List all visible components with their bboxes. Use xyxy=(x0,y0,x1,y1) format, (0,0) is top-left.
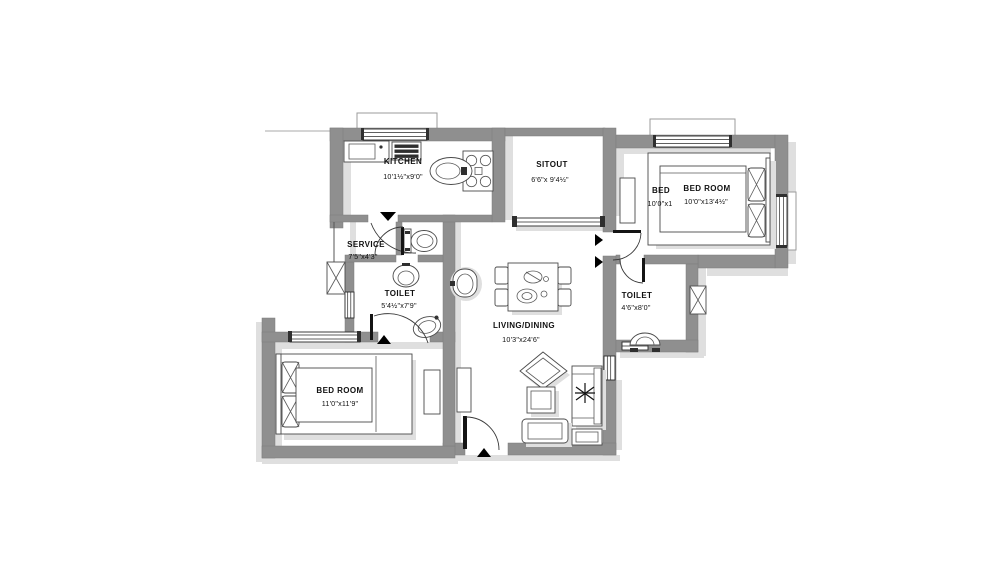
bedroom-bottom-dims: 11'0"x11'9" xyxy=(322,399,359,408)
toilet-right-label: TOILET 4'6"x8'0" xyxy=(621,291,652,312)
door-leaf-entry xyxy=(463,416,467,449)
kitchen-window-ledge xyxy=(357,113,437,129)
door-arc-entry xyxy=(466,417,499,450)
toilet-left-dims: 5'4½"x7'9" xyxy=(381,301,417,310)
service-dims: 7'5"x4'3" xyxy=(348,252,377,261)
arrow-bedroom-bottom-door xyxy=(377,335,391,344)
wc-toilet xyxy=(404,229,437,253)
sofa-set xyxy=(520,352,606,447)
bed-bottom xyxy=(276,354,416,440)
bedroom-side-window-ledge xyxy=(787,192,796,250)
kitchen-name: KITCHEN xyxy=(384,157,422,166)
ventilation-shaft-right xyxy=(690,286,706,314)
bedroom-top-name: BED ROOM xyxy=(683,184,730,193)
sitout-label: SITOUT 6'6"x 9'4½" xyxy=(531,160,569,184)
toilet-right-name: TOILET xyxy=(622,291,653,300)
toilet-left-name: TOILET xyxy=(385,289,416,298)
sitout-dims: 6'6"x 9'4½" xyxy=(531,175,569,184)
cabinet-bedroom-side xyxy=(424,370,440,414)
bedroom-bottom-name: BED ROOM xyxy=(316,386,363,395)
kitchen-platform-oval xyxy=(430,158,472,185)
bed-dims: 10'0"x1 xyxy=(648,199,673,208)
door-leaf-toilet-right xyxy=(642,258,645,282)
living-dims: 10'3"x24'6" xyxy=(502,335,540,344)
floor-plan-page: KITCHEN 10'1½"x9'0" SITOUT 6'6"x 9'4½" B… xyxy=(0,0,1000,583)
arrow-entry-door xyxy=(477,448,491,457)
toilet-left-window xyxy=(345,292,354,318)
door-leaf-bedroom-bottom xyxy=(370,314,373,340)
kitchen-dims: 10'1½"x9'0" xyxy=(383,172,423,181)
service-name: SERVICE xyxy=(347,240,385,249)
bedroom-window-ledge xyxy=(650,119,735,136)
door-arc-toilet-right xyxy=(620,259,643,283)
kitchen-window xyxy=(361,128,429,140)
toilet-right-dims: 4'6"x8'0" xyxy=(621,303,650,312)
dining-set xyxy=(495,263,571,315)
bedroom-top-window xyxy=(653,135,732,147)
sitout-sill xyxy=(512,216,605,227)
washbasin-dining xyxy=(450,267,482,301)
living-dining-label: LIVING/DINING 10'3"x24'6" xyxy=(493,321,555,344)
tv-unit-living-side xyxy=(457,368,471,412)
kitchen-sink xyxy=(344,141,389,162)
living-name: LIVING/DINING xyxy=(493,321,555,330)
arrow-bedroom-top-door xyxy=(595,234,603,246)
bedroom-bottom-window xyxy=(288,331,361,342)
door-leaf-bedroom-top xyxy=(613,230,641,233)
kitchen-label: KITCHEN 10'1½"x9'0" xyxy=(383,157,423,181)
ventilation-shaft-left xyxy=(327,262,345,294)
bedroom-top-dims: 10'0"x13'4½" xyxy=(684,197,728,206)
washbasin-toilet-left-top xyxy=(393,263,419,287)
door-leaf-toilet-left xyxy=(401,227,404,255)
sitout-name: SITOUT xyxy=(536,160,568,169)
bedroom-side-window xyxy=(775,194,787,248)
arrow-toilet-right-door xyxy=(595,256,603,268)
arrow-kitchen-door xyxy=(380,212,396,221)
floor-plan-drawing: KITCHEN 10'1½"x9'0" SITOUT 6'6"x 9'4½" B… xyxy=(0,0,1000,583)
wardrobe-top-bedroom xyxy=(620,178,635,223)
toilet-left-label: TOILET 5'4½"x7'9" xyxy=(381,289,417,310)
bed-name: BED xyxy=(652,186,670,195)
